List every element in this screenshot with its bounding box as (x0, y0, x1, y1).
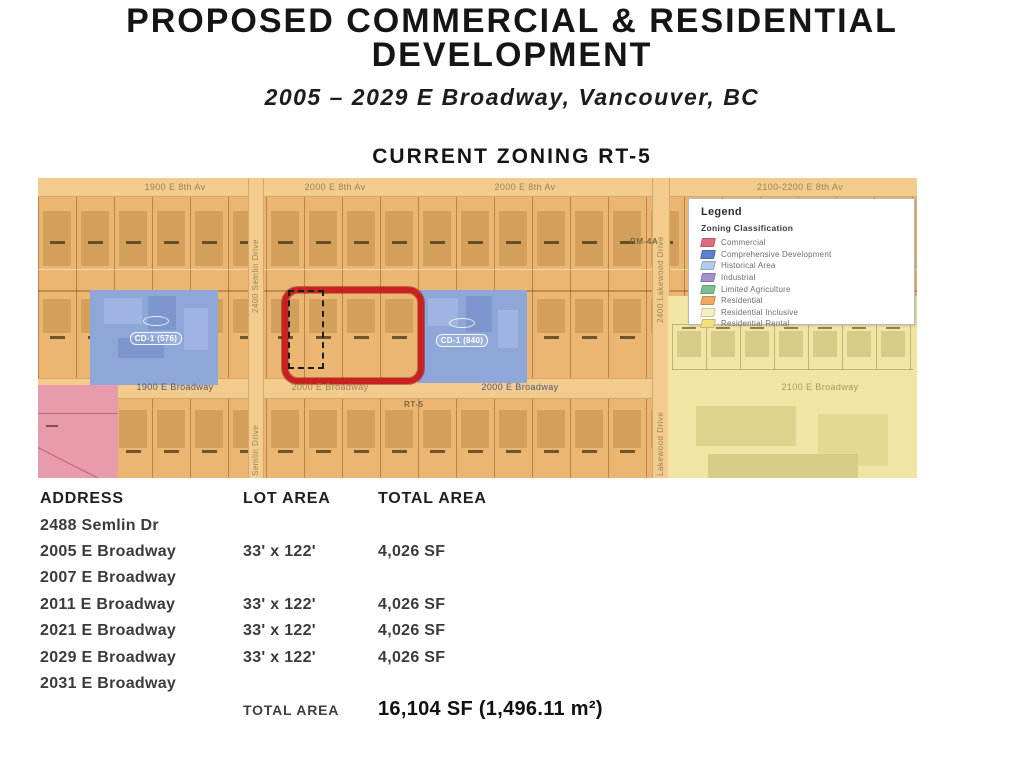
cd1-left-text: CD-1 (576) (130, 332, 183, 345)
table-row-lot-area: 33' x 122' (243, 618, 378, 644)
table-row-total-area: 4,026 SF (378, 539, 678, 565)
legend-item-label: Comprehensive Development (721, 250, 831, 259)
street-label-8th-av: 2000 E 8th Av (494, 182, 555, 192)
building-footprints (672, 331, 913, 357)
legend-item: Residential Rental (701, 318, 914, 330)
street-label-broadway: 2000 E Broadway (291, 382, 368, 392)
subject-parcel-outline (288, 290, 324, 369)
zone-commercial (38, 385, 118, 478)
legend-item-label: Limited Agriculture (721, 285, 791, 294)
cd1-label-left: CD-1 (576) (126, 316, 186, 346)
total-area-value: 16,104 SF (1,496.11 m²) (378, 698, 603, 721)
zoning-color-swatch-icon (700, 238, 716, 247)
street-label-broadway: 2100 E Broadway (781, 382, 858, 392)
table-row-lot-area: 33' x 122' (243, 644, 378, 670)
table-row-lot-area: 33' x 122' (243, 592, 378, 618)
street-label-8th-av: 2100-2200 E 8th Av (757, 182, 843, 192)
legend-item: Limited Agriculture (701, 283, 914, 295)
table-row-total-area (378, 512, 678, 538)
building-block (696, 406, 796, 446)
table-row-total-area: 4,026 SF (378, 592, 678, 618)
street-label-8th-av: 1900 E 8th Av (144, 182, 205, 192)
table-row-address: 2029 E Broadway (40, 644, 243, 670)
table-row-address: 2488 Semlin Dr (40, 512, 243, 538)
zoning-color-swatch-icon (700, 308, 716, 317)
zoning-color-swatch-icon (700, 319, 716, 328)
table-row-total-area (378, 671, 678, 697)
street-label-semlin-upper: 2400 Semlin Drive (251, 228, 260, 313)
table-row-address: 2007 E Broadway (40, 565, 243, 591)
lots-strip (672, 324, 913, 370)
table-row-address: 2031 E Broadway (40, 671, 243, 697)
col-header-total-area: TOTAL AREA (378, 486, 678, 512)
map-legend: Legend Zoning Classification Commercial … (688, 198, 915, 325)
legend-item-label: Commercial (721, 238, 766, 247)
legend-title: Legend (701, 206, 914, 218)
street-label-broadway: 1900 E Broadway (136, 382, 213, 392)
zoning-color-swatch-icon (700, 285, 716, 294)
address-table: ADDRESS LOT AREA TOTAL AREA 2488 Semlin … (40, 486, 680, 697)
legend-item-label: Residential Rental (721, 319, 790, 328)
legend-item: Industrial (701, 272, 914, 284)
legend-subtitle: Zoning Classification (701, 223, 914, 233)
street-label-broadway: 2000 E Broadway (481, 382, 558, 392)
parcel-oval-icon (143, 316, 169, 326)
street-label-8th-av: 2000 E 8th Av (304, 182, 365, 192)
table-row-address: 2021 E Broadway (40, 618, 243, 644)
table-row-lot-area (243, 565, 378, 591)
total-area-row: TOTAL AREA 16,104 SF (1,496.11 m²) (40, 698, 740, 721)
building-block (708, 454, 858, 478)
cd1-label-right: CD-1 (840) (432, 318, 492, 348)
table-row-lot-area: 33' x 122' (243, 539, 378, 565)
street-label-semlin-lower: Semlin Drive (251, 416, 260, 476)
zoning-map: CD-1 (576) CD-1 (840) 1900 E 8th Av 2000… (38, 178, 917, 478)
lot-number (46, 425, 58, 427)
col-header-address: ADDRESS (40, 486, 243, 512)
total-area-label: TOTAL AREA (243, 702, 378, 718)
table-row-lot-area (243, 671, 378, 697)
legend-item: Residential Inclusive (701, 307, 914, 319)
page-title-line1: PROPOSED COMMERCIAL & RESIDENTIAL (0, 4, 1024, 38)
legend-item: Residential (701, 295, 914, 307)
zone-tag-rt5: RT-5 (404, 400, 424, 409)
zoning-color-swatch-icon (700, 261, 716, 270)
zoning-color-swatch-icon (700, 296, 716, 305)
legend-item: Comprehensive Development (701, 249, 914, 261)
table-row-total-area: 4,026 SF (378, 618, 678, 644)
table-row-lot-area (243, 512, 378, 538)
zone-tag-rm4a: RM-4A (630, 237, 658, 246)
legend-item-label: Residential (721, 296, 763, 305)
page-title-line2: DEVELOPMENT (0, 38, 1024, 72)
street-label-lakewood-lower: Lakewood Drive (656, 410, 665, 476)
address-subtitle: 2005 – 2029 E Broadway, Vancouver, BC (0, 84, 1024, 111)
cd1-right-text: CD-1 (840) (436, 334, 489, 347)
table-row-total-area: 4,026 SF (378, 644, 678, 670)
legend-item: Commercial (701, 237, 914, 249)
legend-item: Historical Area (701, 260, 914, 272)
table-row-address: 2011 E Broadway (40, 592, 243, 618)
legend-item-label: Industrial (721, 273, 755, 282)
building-block (184, 308, 208, 350)
zoning-color-swatch-icon (700, 273, 716, 282)
legend-item-label: Residential Inclusive (721, 308, 798, 317)
table-row-total-area (378, 565, 678, 591)
zoning-color-swatch-icon (700, 250, 716, 259)
col-header-lot-area: LOT AREA (243, 486, 378, 512)
legend-item-label: Historical Area (721, 261, 776, 270)
zoning-map-heading: CURRENT ZONING RT-5 (0, 145, 1024, 169)
parcel-oval-icon (449, 318, 475, 328)
table-row-address: 2005 E Broadway (40, 539, 243, 565)
building-block (498, 310, 518, 348)
